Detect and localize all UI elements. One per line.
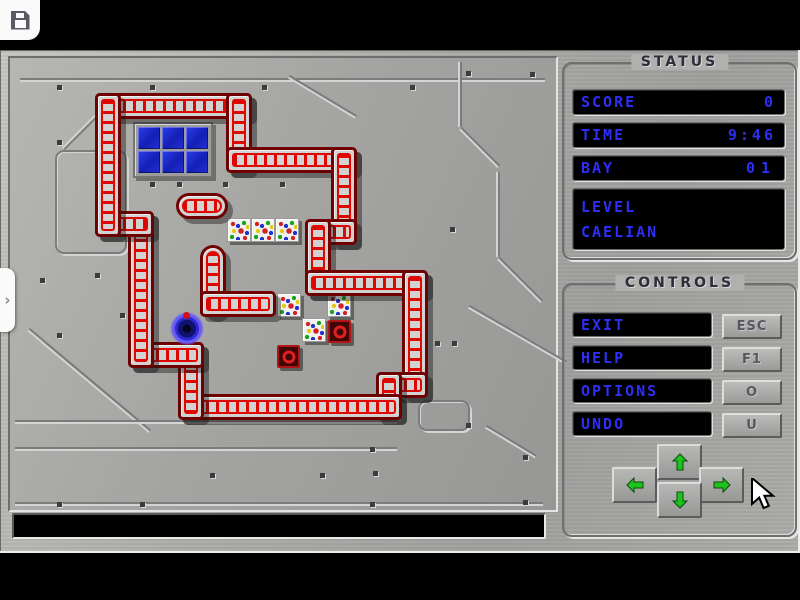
rivet: [150, 182, 155, 187]
rivet: [57, 333, 62, 338]
wall-segment: [178, 394, 402, 420]
panel-line: [15, 502, 543, 504]
target-pad: [277, 345, 300, 368]
score-display: SCORE 0: [572, 89, 785, 115]
score-value: 0: [764, 93, 776, 111]
exit-label: EXIT: [581, 316, 625, 334]
rivet: [452, 341, 457, 346]
controls-title: CONTROLS: [615, 275, 744, 291]
rivet: [370, 502, 375, 507]
player-character: [170, 311, 204, 345]
cargo-crate: [275, 218, 299, 242]
rivet: [40, 278, 45, 283]
undo-label: UNDO: [581, 415, 625, 433]
arrow-left-button[interactable]: [612, 467, 657, 503]
exit-button[interactable]: EXIT: [572, 312, 712, 337]
page: { "toolbar": { "save_icon": "floppy-disk…: [0, 0, 800, 600]
rivet: [410, 85, 415, 90]
rivet: [523, 500, 528, 505]
options-key-o[interactable]: O: [722, 380, 782, 405]
options-label: OPTIONS: [581, 382, 658, 400]
rivet: [140, 502, 145, 507]
help-button[interactable]: HELP: [572, 345, 712, 370]
bay-label: BAY: [581, 159, 614, 177]
arrow-left-icon: [625, 475, 645, 495]
rivet: [435, 341, 440, 346]
rivet: [466, 71, 471, 76]
floppy-disk-icon: [11, 11, 30, 30]
level-label: LEVEL: [581, 198, 636, 216]
cargo-crate: [302, 318, 326, 342]
top-black-bar: [0, 0, 800, 50]
cargo-window: [133, 122, 213, 178]
help-key-f1[interactable]: F1: [722, 347, 782, 372]
undo-key-u[interactable]: U: [722, 413, 782, 438]
rivet: [57, 502, 62, 507]
cargo-crate: [327, 293, 351, 317]
panel-line: [20, 78, 545, 80]
level-display: LEVEL CAELIAN: [572, 188, 785, 250]
window-cell: [186, 127, 208, 149]
rivet: [373, 471, 378, 476]
undo-button[interactable]: UNDO: [572, 411, 712, 436]
cargo-crate: [227, 218, 251, 242]
rivet: [150, 85, 155, 90]
message-bar: [12, 513, 546, 539]
status-title: STATUS: [631, 54, 728, 70]
sidebar-expand-tab[interactable]: ›: [0, 268, 15, 332]
wall-segment: [176, 193, 228, 219]
window-cell: [162, 151, 184, 173]
arrow-down-button[interactable]: [657, 482, 702, 518]
target-pad: [328, 320, 351, 343]
cargo-crate: [251, 218, 275, 242]
arrow-down-icon: [670, 490, 690, 510]
rivet: [210, 473, 215, 478]
chevron-right-icon: ›: [4, 291, 10, 309]
level-name: CAELIAN: [581, 223, 658, 241]
bay-value: 01: [746, 159, 776, 177]
time-display: TIME 9:46: [572, 122, 785, 148]
arrow-right-icon: [712, 475, 732, 495]
panel-outline: [418, 400, 470, 431]
time-label: TIME: [581, 126, 625, 144]
controls-panel: CONTROLS EXIT ESC HELP F1 OPTIONS O UNDO…: [562, 283, 797, 537]
rivet: [120, 313, 125, 318]
exit-key-esc[interactable]: ESC: [722, 314, 782, 339]
arrow-up-button[interactable]: [657, 444, 702, 480]
rivet: [523, 455, 528, 460]
cargo-crate: [277, 293, 301, 317]
save-button[interactable]: [0, 0, 40, 40]
time-value: 9:46: [728, 126, 776, 144]
game-screen: STATUS SCORE 0 TIME 9:46 BAY 01 LEVEL CA…: [0, 50, 800, 553]
options-button[interactable]: OPTIONS: [572, 378, 712, 403]
rivet: [450, 227, 455, 232]
panel-line: [15, 420, 397, 422]
rivet: [57, 140, 62, 145]
window-cell: [162, 127, 184, 149]
rivet: [370, 447, 375, 452]
panel-line: [460, 62, 462, 127]
rivet: [530, 72, 535, 77]
rivet: [223, 182, 228, 187]
rivet: [57, 85, 62, 90]
arrow-up-icon: [670, 452, 690, 472]
rivet: [320, 473, 325, 478]
rivet: [177, 182, 182, 187]
score-label: SCORE: [581, 93, 636, 111]
window-cell: [138, 151, 160, 173]
rivet: [280, 182, 285, 187]
rivet: [95, 273, 100, 278]
panel-line: [15, 447, 397, 449]
rivet: [262, 85, 267, 90]
panel-line: [498, 172, 500, 257]
wall-segment: [200, 291, 276, 317]
bay-display: BAY 01: [572, 155, 785, 181]
status-panel: STATUS SCORE 0 TIME 9:46 BAY 01 LEVEL CA…: [562, 62, 797, 260]
window-cell: [186, 151, 208, 173]
wall-segment: [95, 93, 121, 237]
arrow-right-button[interactable]: [699, 467, 744, 503]
help-label: HELP: [581, 349, 625, 367]
rivet: [466, 423, 471, 428]
window-cell: [138, 127, 160, 149]
